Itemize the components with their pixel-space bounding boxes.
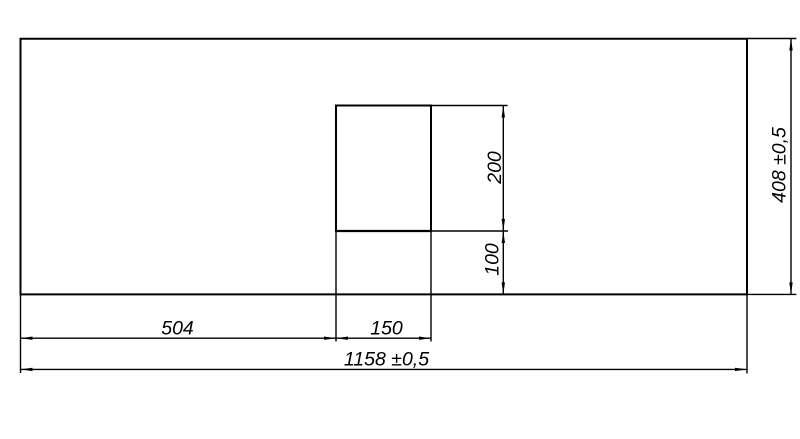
svg-text:200: 200: [484, 151, 506, 185]
svg-text:100: 100: [482, 243, 504, 276]
svg-text:504: 504: [161, 317, 194, 339]
svg-text:150: 150: [370, 317, 403, 339]
svg-text:1158 ±0,5: 1158 ±0,5: [344, 349, 429, 371]
svg-text:408 ±0,5: 408 ±0,5: [769, 127, 791, 203]
